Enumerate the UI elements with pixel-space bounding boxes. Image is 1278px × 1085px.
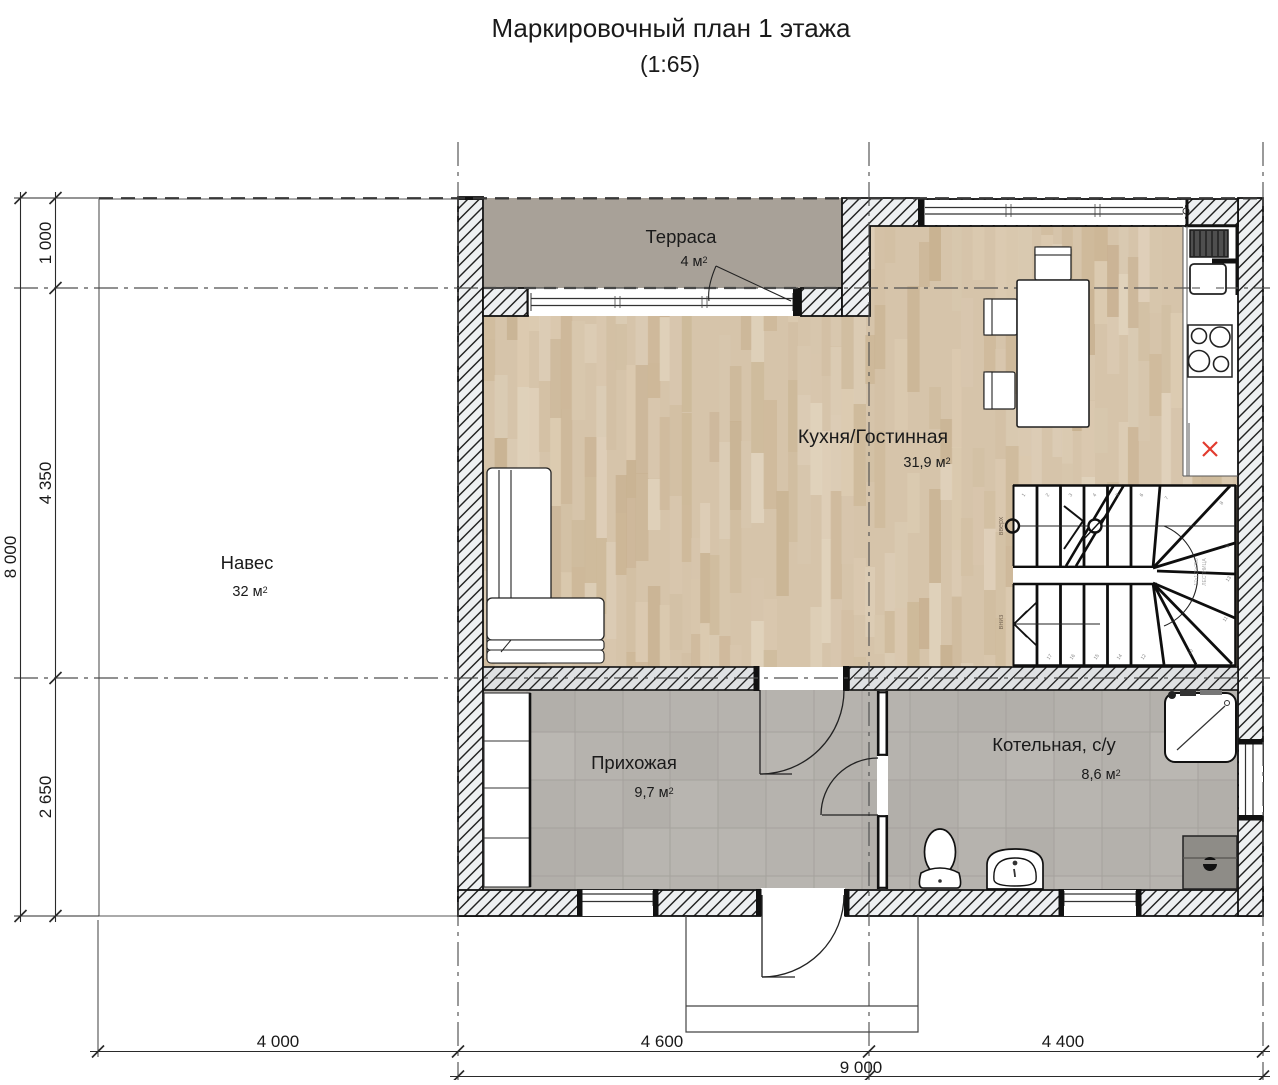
svg-text:2 650: 2 650 xyxy=(36,776,55,819)
svg-text:Кухня/Гостинная: Кухня/Гостинная xyxy=(798,426,948,448)
svg-text:31,9 м2: 31,9 м2 xyxy=(903,455,950,471)
svg-text:Навес: Навес xyxy=(221,552,274,573)
svg-text:4 400: 4 400 xyxy=(1042,1032,1085,1051)
svg-text:4 600: 4 600 xyxy=(641,1032,684,1051)
svg-text:8,6 м2: 8,6 м2 xyxy=(1081,767,1120,783)
svg-text:Терраса: Терраса xyxy=(646,226,718,247)
svg-text:17х175х250: 17х175х250 xyxy=(1194,558,1200,585)
svg-text:Котельная, с/у: Котельная, с/у xyxy=(992,734,1116,755)
svg-text:Прихожая: Прихожая xyxy=(591,752,677,773)
svg-text:32 м2: 32 м2 xyxy=(232,584,267,600)
svg-text:1 000: 1 000 xyxy=(36,222,55,265)
svg-text:8 000: 8 000 xyxy=(1,536,20,579)
svg-text:4 000: 4 000 xyxy=(257,1032,300,1051)
svg-text:вверх: вверх xyxy=(998,516,1005,535)
svg-text:9 000: 9 000 xyxy=(840,1058,883,1077)
svg-text:9,7 м2: 9,7 м2 xyxy=(634,785,673,801)
svg-text:вниз: вниз xyxy=(998,615,1005,630)
svg-text:4 350: 4 350 xyxy=(36,462,55,505)
svg-text:Маркировочный план 1 этажа: Маркировочный план 1 этажа xyxy=(491,13,851,43)
svg-text:ЛЕСТНИЦА: ЛЕСТНИЦА xyxy=(1202,558,1208,586)
svg-text:(1:65): (1:65) xyxy=(640,51,700,77)
